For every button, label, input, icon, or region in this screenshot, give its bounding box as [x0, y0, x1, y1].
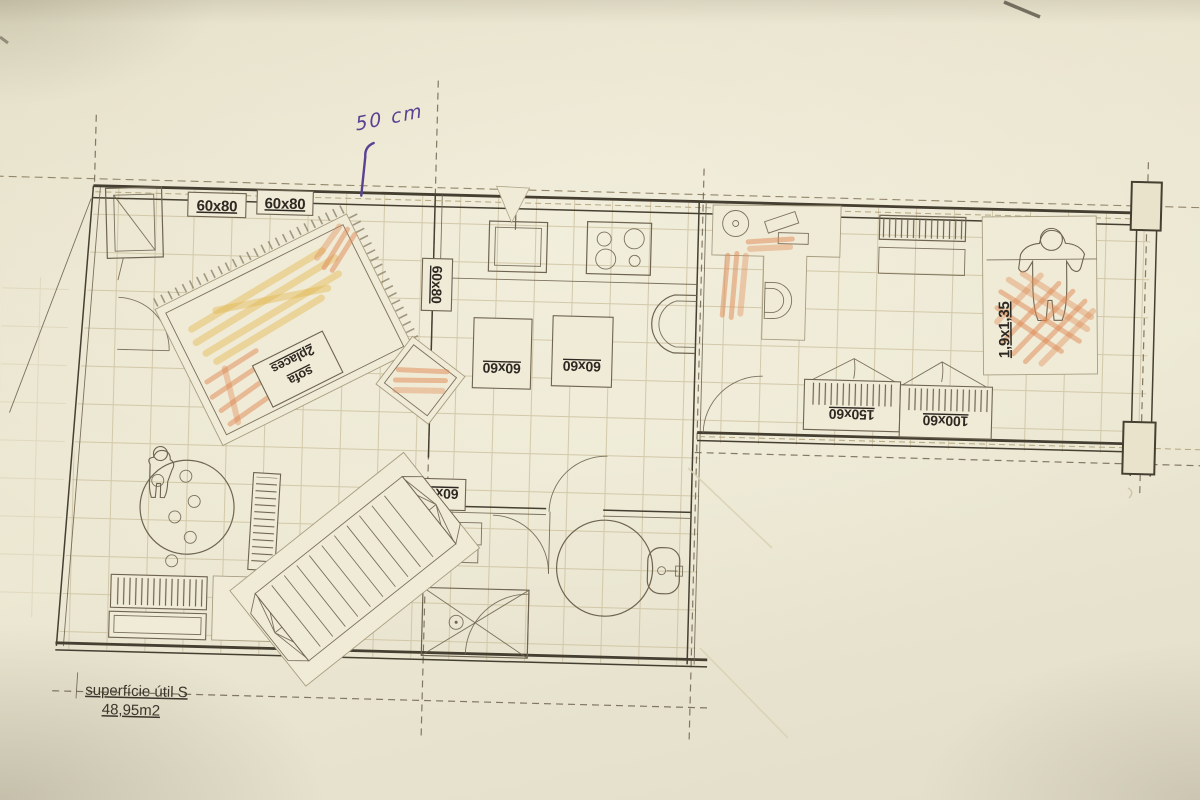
label-60x80-side: 60x80: [421, 258, 452, 311]
table-60x60-b: 60x60: [551, 316, 613, 388]
label-60x80-a-text: 60x80: [196, 197, 237, 215]
paper-corner-mark: [1004, 2, 1040, 17]
wardrobe-150x60: 150x60: [803, 379, 900, 431]
handwritten-note-text: 50 cm: [355, 100, 425, 136]
wall-column-bottom: [1122, 422, 1155, 475]
bed-size-label: 1,9x1,35: [996, 301, 1013, 358]
paper-crease-2: [700, 648, 788, 738]
handwritten-pointer-line: [361, 143, 373, 196]
wardrobe-150x60-text: 150x60: [828, 406, 874, 423]
wall-column-top: [1131, 182, 1162, 231]
area-note-title: superfície útil S: [85, 682, 188, 702]
table-60x60-a-text: 60x60: [482, 360, 521, 377]
handwritten-annotation: 50 cm: [352, 98, 425, 197]
area-note: superfície útil S 48,95m2: [76, 672, 189, 720]
bed-cutout: 1,9x1,35: [982, 216, 1097, 375]
floor-plan: 60x80 60x80: [0, 69, 1200, 761]
edge-nick: [0, 37, 8, 43]
table-60x60-a: 60x60: [472, 318, 532, 389]
wardrobe-100x60: 100x60: [899, 385, 992, 439]
bed-size-text: 1,9x1,35: [996, 301, 1013, 358]
area-note-value: 48,95m2: [102, 701, 161, 720]
sideboard: [109, 574, 208, 640]
table-60x60-b-text: 60x60: [562, 358, 601, 375]
wardrobe-100x60-text: 100x60: [922, 412, 968, 429]
floor-plan-photo: 60x80 60x80: [0, 0, 1200, 800]
label-60x80-b-text: 60x80: [264, 195, 305, 213]
floor-plan-svg: 60x80 60x80: [0, 0, 1200, 800]
paper-crease-1: [688, 468, 772, 548]
label-60x80-side-text: 60x80: [428, 266, 445, 305]
label-60x80-a: 60x80: [188, 192, 247, 218]
label-60x80-b: 60x80: [257, 190, 314, 215]
paper-curl-mark: [1128, 488, 1132, 498]
